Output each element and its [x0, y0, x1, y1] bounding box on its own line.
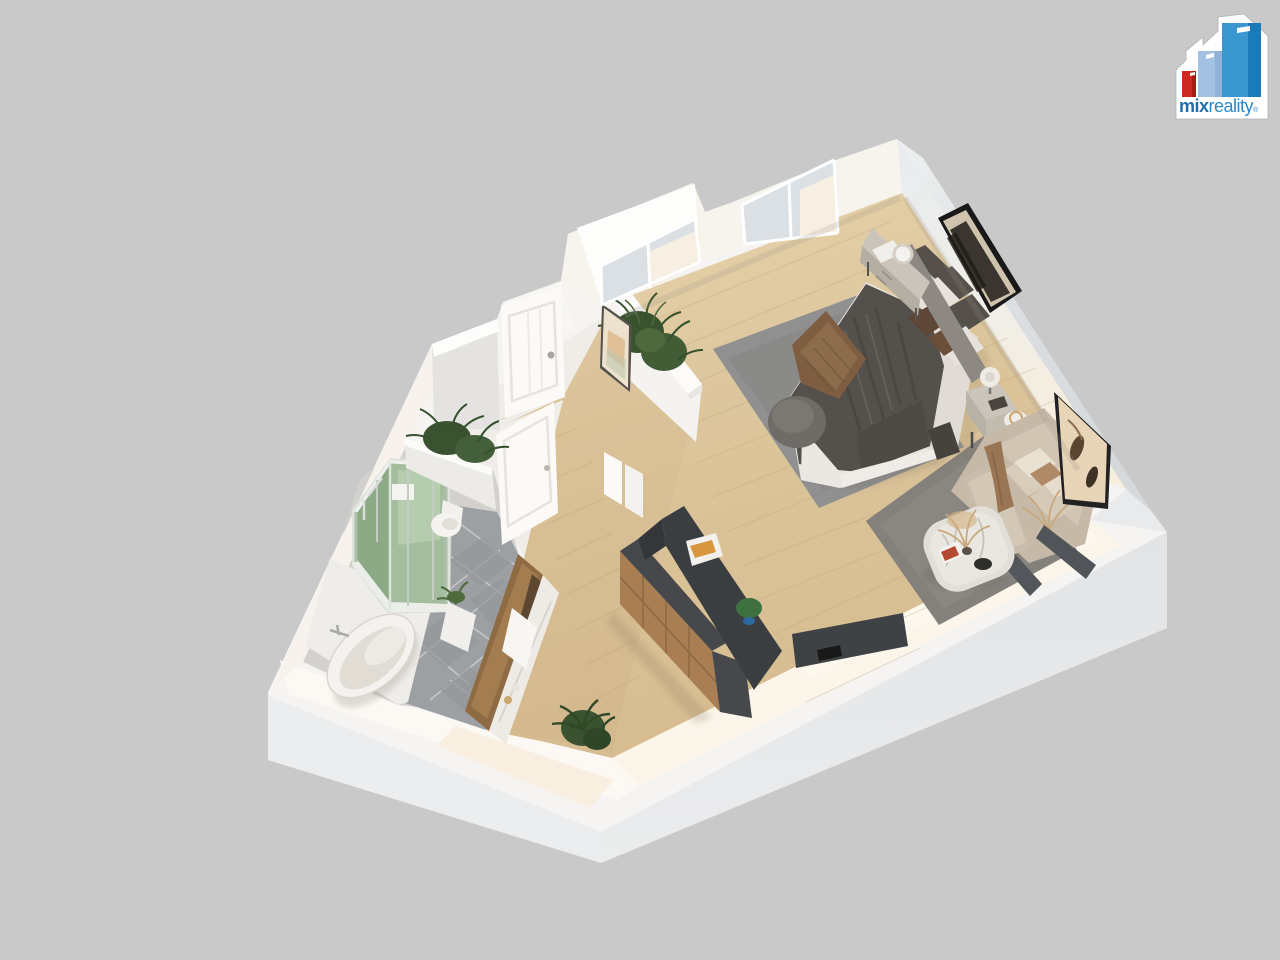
svg-text:mixreality®: mixreality®: [1179, 96, 1259, 116]
